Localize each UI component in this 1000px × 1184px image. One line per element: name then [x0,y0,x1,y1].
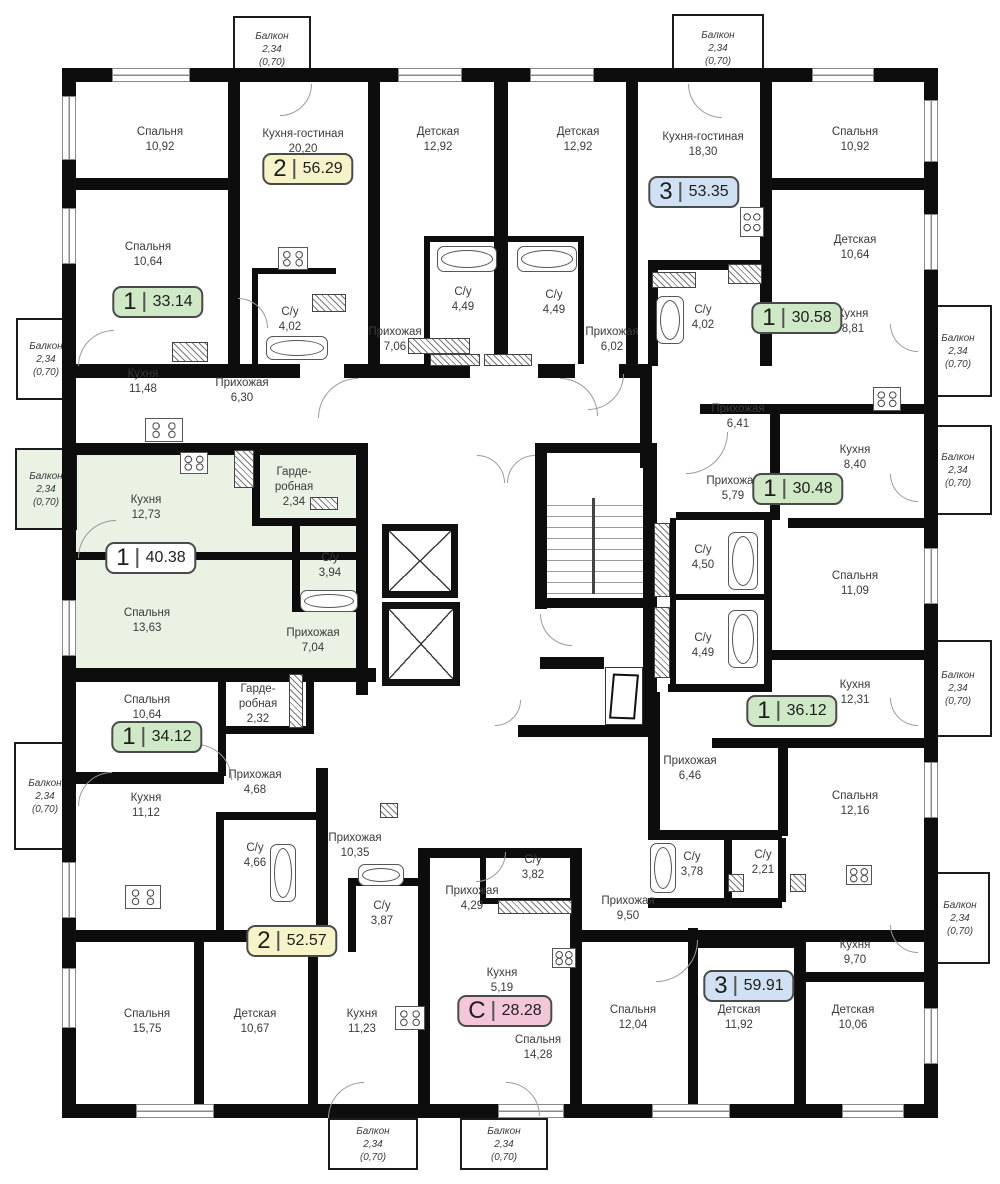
door-opening [300,364,344,378]
room-area: 4,29 [445,899,498,914]
window [62,600,76,656]
wall [76,443,368,455]
room-name: Кухня [131,493,162,508]
room-label: Спальня10,64 [124,693,170,723]
wall [770,650,924,660]
room-area: 12,73 [131,508,162,523]
room-name: С/у [692,543,714,558]
window [924,214,938,270]
room-area: 12,16 [832,804,878,819]
stairs-icon [547,495,643,597]
apartment-badge: 359.91 [703,970,794,1002]
wall [306,672,314,730]
room-label: Спальня14,28 [515,1033,561,1063]
room-area: 10,92 [832,140,878,155]
wall [724,838,732,902]
room-label: С/у4,66 [244,841,266,871]
room-area: 10,92 [137,140,183,155]
room-name: Кухня [131,791,162,806]
room-name: Кухня [347,1007,378,1022]
room-name: Спальня [610,1003,656,1018]
bathtub-icon [656,296,684,344]
room-name: Спальня [124,1007,170,1022]
room-label: С/у3,78 [681,850,703,880]
door-arc-icon [686,432,728,474]
door-arc-icon [196,744,232,780]
shaft-hatch-icon [790,874,806,892]
room-label: С/у4,02 [279,305,301,335]
room-area: 9,50 [601,909,654,924]
room-area: 3,87 [371,914,393,929]
door-arc-icon [476,852,506,882]
room-area: 10,35 [328,846,381,861]
room-label: Спальня13,63 [124,606,170,636]
room-name: С/у [371,899,393,914]
wall [648,692,660,840]
room-name: Спальня [137,125,183,140]
room-label: Кухня9,70 [840,938,871,968]
wall [308,942,318,1104]
badge-separator [784,479,786,499]
door-arc-icon [280,84,312,116]
door-arc-icon [78,330,114,366]
apartment-total-area: 28.28 [502,1003,542,1019]
apartment-badge: 136.12 [746,695,837,727]
stove-icon [740,207,764,237]
apartment-rooms-count: 1 [123,290,136,314]
door-opening [470,364,538,378]
room-area: 4,49 [692,646,714,661]
apartment-rooms-count: 1 [762,306,775,330]
bathtub-icon [437,246,497,272]
room-name: Детская [834,233,877,248]
bathtub-icon [266,336,328,360]
room-label: Спальня12,04 [610,1003,656,1033]
room-name: Детская [417,125,460,140]
shaft-hatch-icon [380,803,398,818]
wall [648,830,782,840]
door-arc-icon [318,378,358,418]
badge-separator [778,701,780,721]
room-name: Прихожая [711,402,764,417]
badge-separator [143,727,145,747]
wall [494,82,508,366]
wall [252,518,358,526]
apartment-rooms-count: 3 [659,180,672,204]
wall [356,443,368,695]
room-label: Прихожая6,30 [215,376,268,406]
wall [216,812,224,934]
room-area: 4,02 [279,320,301,335]
room-area: 18,30 [662,145,743,160]
room-name: Прихожая [445,884,498,899]
room-name: С/у [279,305,301,320]
room-label: Кухня12,73 [131,493,162,523]
door-arc-icon [506,1082,540,1116]
room-label: Кухня11,12 [131,791,162,821]
room-label: Кухня12,31 [840,678,871,708]
room-label: Гарде- робная2,34 [275,465,313,511]
room-label: Прихожая4,68 [228,768,281,798]
apartment-total-area: 30.48 [793,481,833,497]
wall [676,594,766,600]
room-label: Кухня-гостиная18,30 [662,130,743,160]
window [62,862,76,918]
apartment-badge: 353.35 [648,176,739,208]
wall [62,68,938,82]
room-area: 7,06 [368,340,421,355]
room-label: Прихожая6,41 [711,402,764,432]
tilted-window-icon [609,674,639,720]
room-label: Кухня8,40 [840,443,871,473]
wall [540,657,604,669]
apartment-badge: 130.58 [751,302,842,334]
window [62,968,76,1028]
room-label: Кухня11,23 [347,1007,378,1037]
balcony-label: Балкон2,34(0,70) [932,874,988,962]
shaft-hatch-icon [728,264,762,284]
wall [535,443,657,453]
room-name: Гарде- робная [275,465,313,495]
room-label: Кухня5,19 [487,966,518,996]
apartment-rooms-count: 2 [257,929,270,953]
room-label: Спальня15,75 [124,1007,170,1037]
apartment-rooms-count: 2 [273,157,286,181]
window [398,68,462,82]
room-label: Спальня10,92 [832,125,878,155]
wall [778,748,788,836]
shaft-hatch-icon [172,342,208,362]
stove-icon [125,885,161,909]
room-name: Кухня [128,367,159,382]
room-label: Прихожая6,02 [585,325,638,355]
shaft-hatch-icon [484,354,532,366]
room-area: 11,92 [718,1018,761,1033]
apartment-badge: 256.29 [262,153,353,185]
room-area: 2,32 [239,713,277,728]
bathtub-icon [517,246,577,272]
window [924,762,938,818]
room-area: 6,30 [215,391,268,406]
room-label: Прихожая9,50 [601,894,654,924]
apartment-badge: 252.57 [246,925,337,957]
apartment-total-area: 30.58 [792,310,832,326]
bathtub-icon [728,610,758,668]
room-area: 5,19 [487,981,518,996]
room-label: Детская10,06 [832,1003,875,1033]
apartment-total-area: 59.91 [744,978,784,994]
room-area: 8,40 [840,458,871,473]
wall [348,878,356,952]
shaft-hatch-icon [498,900,572,914]
room-name: С/у [522,853,544,868]
wall [76,364,640,378]
elevator-icon [382,524,458,598]
shaft-hatch-icon [312,294,346,312]
room-name: Прихожая [328,831,381,846]
apartment-badge: 134.12 [111,721,202,753]
room-area: 4,49 [452,300,474,315]
room-name: Кухня-гостиная [262,127,343,142]
window [62,208,76,264]
wall [76,178,228,190]
room-area: 3,94 [319,566,341,581]
room-label: С/у4,02 [692,303,714,333]
bathtub-icon [358,864,404,886]
room-area: 2,34 [275,496,313,511]
room-label: Кухня11,48 [128,367,159,397]
badge-separator [680,182,682,202]
badge-separator [783,308,785,328]
badge-separator [278,931,280,951]
apartment-badge: 130.48 [752,473,843,505]
room-label: С/у4,49 [543,288,565,318]
room-area: 10,06 [832,1018,875,1033]
wall [194,942,204,1104]
balcony: Балкон2,34(0,70) [328,1118,418,1170]
bathtub-icon [270,844,296,902]
apartment-total-area: 56.29 [303,161,343,177]
apartment-badge: 140.38 [105,542,196,574]
room-name: Детская [718,1003,761,1018]
wall [794,938,806,1104]
room-area: 10,64 [125,255,171,270]
room-label: Детская12,92 [557,125,600,155]
door-arc-icon [328,1082,364,1118]
room-area: 6,02 [585,340,638,355]
wall [578,236,584,366]
room-area: 3,78 [681,865,703,880]
apartment-total-area: 40.38 [146,550,186,566]
room-label: Детская10,67 [234,1007,277,1037]
wall [626,82,638,366]
room-area: 11,09 [832,584,878,599]
balcony-label: Балкон2,34(0,70) [462,1120,546,1168]
apartment-total-area: 36.12 [787,703,827,719]
shaft-hatch-icon [430,354,480,366]
wall [292,526,300,610]
room-area: 12,92 [417,140,460,155]
stove-icon [846,865,872,885]
room-name: Спальня [832,789,878,804]
wall [508,236,580,242]
room-name: Прихожая [215,376,268,391]
wall [76,668,376,682]
stove-icon [395,1006,425,1030]
shaft-hatch-icon [654,607,670,678]
room-name: Спальня [124,693,170,708]
door-arc-icon [688,84,722,118]
wall [518,725,658,737]
door-arc-icon [495,700,521,726]
room-label: Спальня11,09 [832,569,878,599]
room-name: Спальня [125,240,171,255]
shaft-hatch-icon [728,874,744,892]
wall [535,598,657,608]
wall [688,938,798,948]
apartment-rooms-count: 1 [116,546,129,570]
stove-icon [180,452,208,474]
badge-separator [735,976,737,996]
room-label: Детская12,92 [417,125,460,155]
room-name: Кухня [840,678,871,693]
door-arc-icon [588,374,624,410]
room-label: С/у4,49 [452,285,474,315]
room-label: Прихожая10,35 [328,831,381,861]
wall [778,838,786,902]
wall [570,850,582,1104]
room-name: Прихожая [585,325,638,340]
wall [676,512,766,520]
balcony: Балкон2,34(0,70) [930,872,990,964]
wall [794,972,924,982]
room-label: Детская10,64 [834,233,877,263]
wall [535,443,547,609]
room-label: Детская11,92 [718,1003,761,1033]
room-name: Детская [234,1007,277,1022]
room-name: Кухня [840,443,871,458]
room-area: 9,70 [840,953,871,968]
room-label: С/у3,87 [371,899,393,929]
shaft-hatch-icon [310,497,338,510]
room-area: 4,02 [692,318,714,333]
shaft-hatch-icon [234,450,254,488]
apartment-rooms-count: С [468,999,485,1023]
room-area: 10,67 [234,1022,277,1037]
window [842,1104,904,1118]
room-name: Детская [832,1003,875,1018]
room-label: Спальня10,92 [137,125,183,155]
wall [772,178,924,190]
room-area: 14,28 [515,1048,561,1063]
stove-icon [145,418,183,442]
shaft-hatch-icon [652,272,696,288]
door-arc-icon [890,698,918,726]
badge-separator [294,159,296,179]
door-arc-icon [477,455,505,483]
wall [670,518,676,688]
room-label: Спальня10,64 [125,240,171,270]
room-name: С/у [319,551,341,566]
wall [316,768,328,934]
room-name: Спальня [124,606,170,621]
elevator-icon [382,602,460,686]
wall [418,850,430,1104]
room-area: 12,31 [840,693,871,708]
wall [764,512,772,692]
room-name: Прихожая [601,894,654,909]
room-name: Кухня [487,966,518,981]
room-name: Спальня [832,569,878,584]
room-area: 4,50 [692,558,714,573]
room-area: 6,41 [711,417,764,432]
bathtub-icon [650,843,676,893]
room-area: 4,49 [543,303,565,318]
shaft-hatch-icon [289,674,303,728]
wall [216,812,316,820]
room-name: С/у [543,288,565,303]
apartment-rooms-count: 1 [757,699,770,723]
wall [788,518,924,528]
stair-stringer [592,498,595,594]
wall [648,898,782,908]
room-area: 6,46 [663,769,716,784]
room-name: С/у [452,285,474,300]
apartment-badge: 133.14 [112,286,203,318]
room-label: С/у4,50 [692,543,714,573]
room-name: С/у [692,303,714,318]
window [112,68,190,82]
room-area: 4,66 [244,856,266,871]
room-area: 13,63 [124,621,170,636]
room-name: Прихожая [368,325,421,340]
room-name: Прихожая [286,626,339,641]
stove-icon [552,948,576,968]
room-name: С/у [692,631,714,646]
door-arc-icon [507,455,535,483]
room-name: Детская [557,125,600,140]
room-area: 2,21 [752,863,774,878]
window [62,96,76,160]
room-name: Кухня [840,938,871,953]
badge-separator [144,292,146,312]
room-area: 7,04 [286,641,339,656]
room-label: Гарде- робная2,32 [239,682,277,728]
room-label: Прихожая4,29 [445,884,498,914]
room-label: Прихожая7,06 [368,325,421,355]
apartment-total-area: 33.14 [153,294,193,310]
room-area: 10,64 [834,248,877,263]
room-area: 12,92 [557,140,600,155]
room-name: С/у [681,850,703,865]
room-name: С/у [244,841,266,856]
window [812,68,874,82]
apartment-badge: С28.28 [457,995,552,1027]
room-name: Кухня-гостиная [662,130,743,145]
room-name: Гарде- робная [239,682,277,712]
balcony: Балкон2,34(0,70) [460,1118,548,1170]
room-label: Спальня12,16 [832,789,878,819]
room-label: С/у2,21 [752,848,774,878]
room-label: С/у4,49 [692,631,714,661]
window [924,100,938,162]
apartment-rooms-count: 3 [714,974,727,998]
wall [424,236,496,242]
floor-plan: Балкон2,34(0,70)Балкон2,34(0,70)Балкон2,… [0,0,1000,1184]
window [136,1104,214,1118]
badge-separator [493,1001,495,1021]
room-area: 3,82 [522,868,544,883]
room-area: 11,23 [347,1022,378,1037]
door-arc-icon [890,474,918,502]
bathtub-icon [300,590,358,612]
room-area: 15,75 [124,1022,170,1037]
apartment-total-area: 53.35 [689,184,729,200]
stove-icon [873,387,901,411]
window [924,1008,938,1064]
wall [712,738,924,748]
door-arc-icon [238,298,268,328]
room-name: Спальня [832,125,878,140]
room-name: Прихожая [663,754,716,769]
door-arc-icon [540,614,572,646]
wall [668,684,772,692]
room-area: 11,48 [128,382,159,397]
room-area: 4,68 [228,783,281,798]
apartment-rooms-count: 1 [122,725,135,749]
balcony-label: Балкон2,34(0,70) [330,1120,416,1168]
room-area: 11,12 [131,806,162,821]
